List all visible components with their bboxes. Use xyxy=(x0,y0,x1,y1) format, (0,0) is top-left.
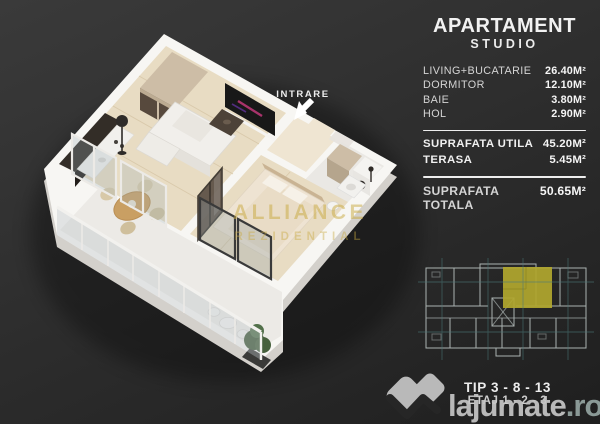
building-schematic xyxy=(418,256,594,362)
table-row: DORMITOR 12.10M² xyxy=(423,78,586,92)
brand-watermark: lajumate.ro xyxy=(380,370,600,424)
panel-title: APARTAMENT xyxy=(423,15,586,37)
divider xyxy=(423,130,586,132)
highlighted-unit xyxy=(503,267,552,308)
brand-name: lajumate xyxy=(448,388,567,423)
brand-logo-icon xyxy=(383,371,447,419)
listing-image: INTRARE ALLIANCE REZIDENTIAL APARTAMENT … xyxy=(0,0,600,424)
table-row: HOL 2.90M² xyxy=(423,107,586,121)
table-row: LIVING+BUCATARIE 26.40M² xyxy=(423,64,586,78)
total-row: SUPRAFATA TOTALA 50.65M² xyxy=(423,184,586,213)
table-row: TERASA 5.45M² xyxy=(423,153,586,169)
subtotals: SUPRAFATA UTILA 45.20M² TERASA 5.45M² xyxy=(423,137,586,168)
spec-panel: APARTAMENT STUDIO LIVING+BUCATARIE 26.40… xyxy=(423,15,586,213)
divider xyxy=(423,176,586,178)
svg-text:REZIDENTIAL: REZIDENTIAL xyxy=(234,231,365,243)
room-areas-table: LIVING+BUCATARIE 26.40M² DORMITOR 12.10M… xyxy=(423,64,586,122)
render-watermark: ALLIANCE REZIDENTIAL xyxy=(233,201,367,243)
table-row: BAIE 3.80M² xyxy=(423,93,586,107)
svg-text:ALLIANCE: ALLIANCE xyxy=(233,201,367,224)
svg-text:lajumate.ro: lajumate.ro xyxy=(448,388,600,423)
entrance-label: INTRARE xyxy=(276,89,329,100)
table-row: SUPRAFATA UTILA 45.20M² xyxy=(423,137,586,153)
brand-tld: .ro xyxy=(566,388,600,423)
panel-subtitle: STUDIO xyxy=(423,37,586,52)
